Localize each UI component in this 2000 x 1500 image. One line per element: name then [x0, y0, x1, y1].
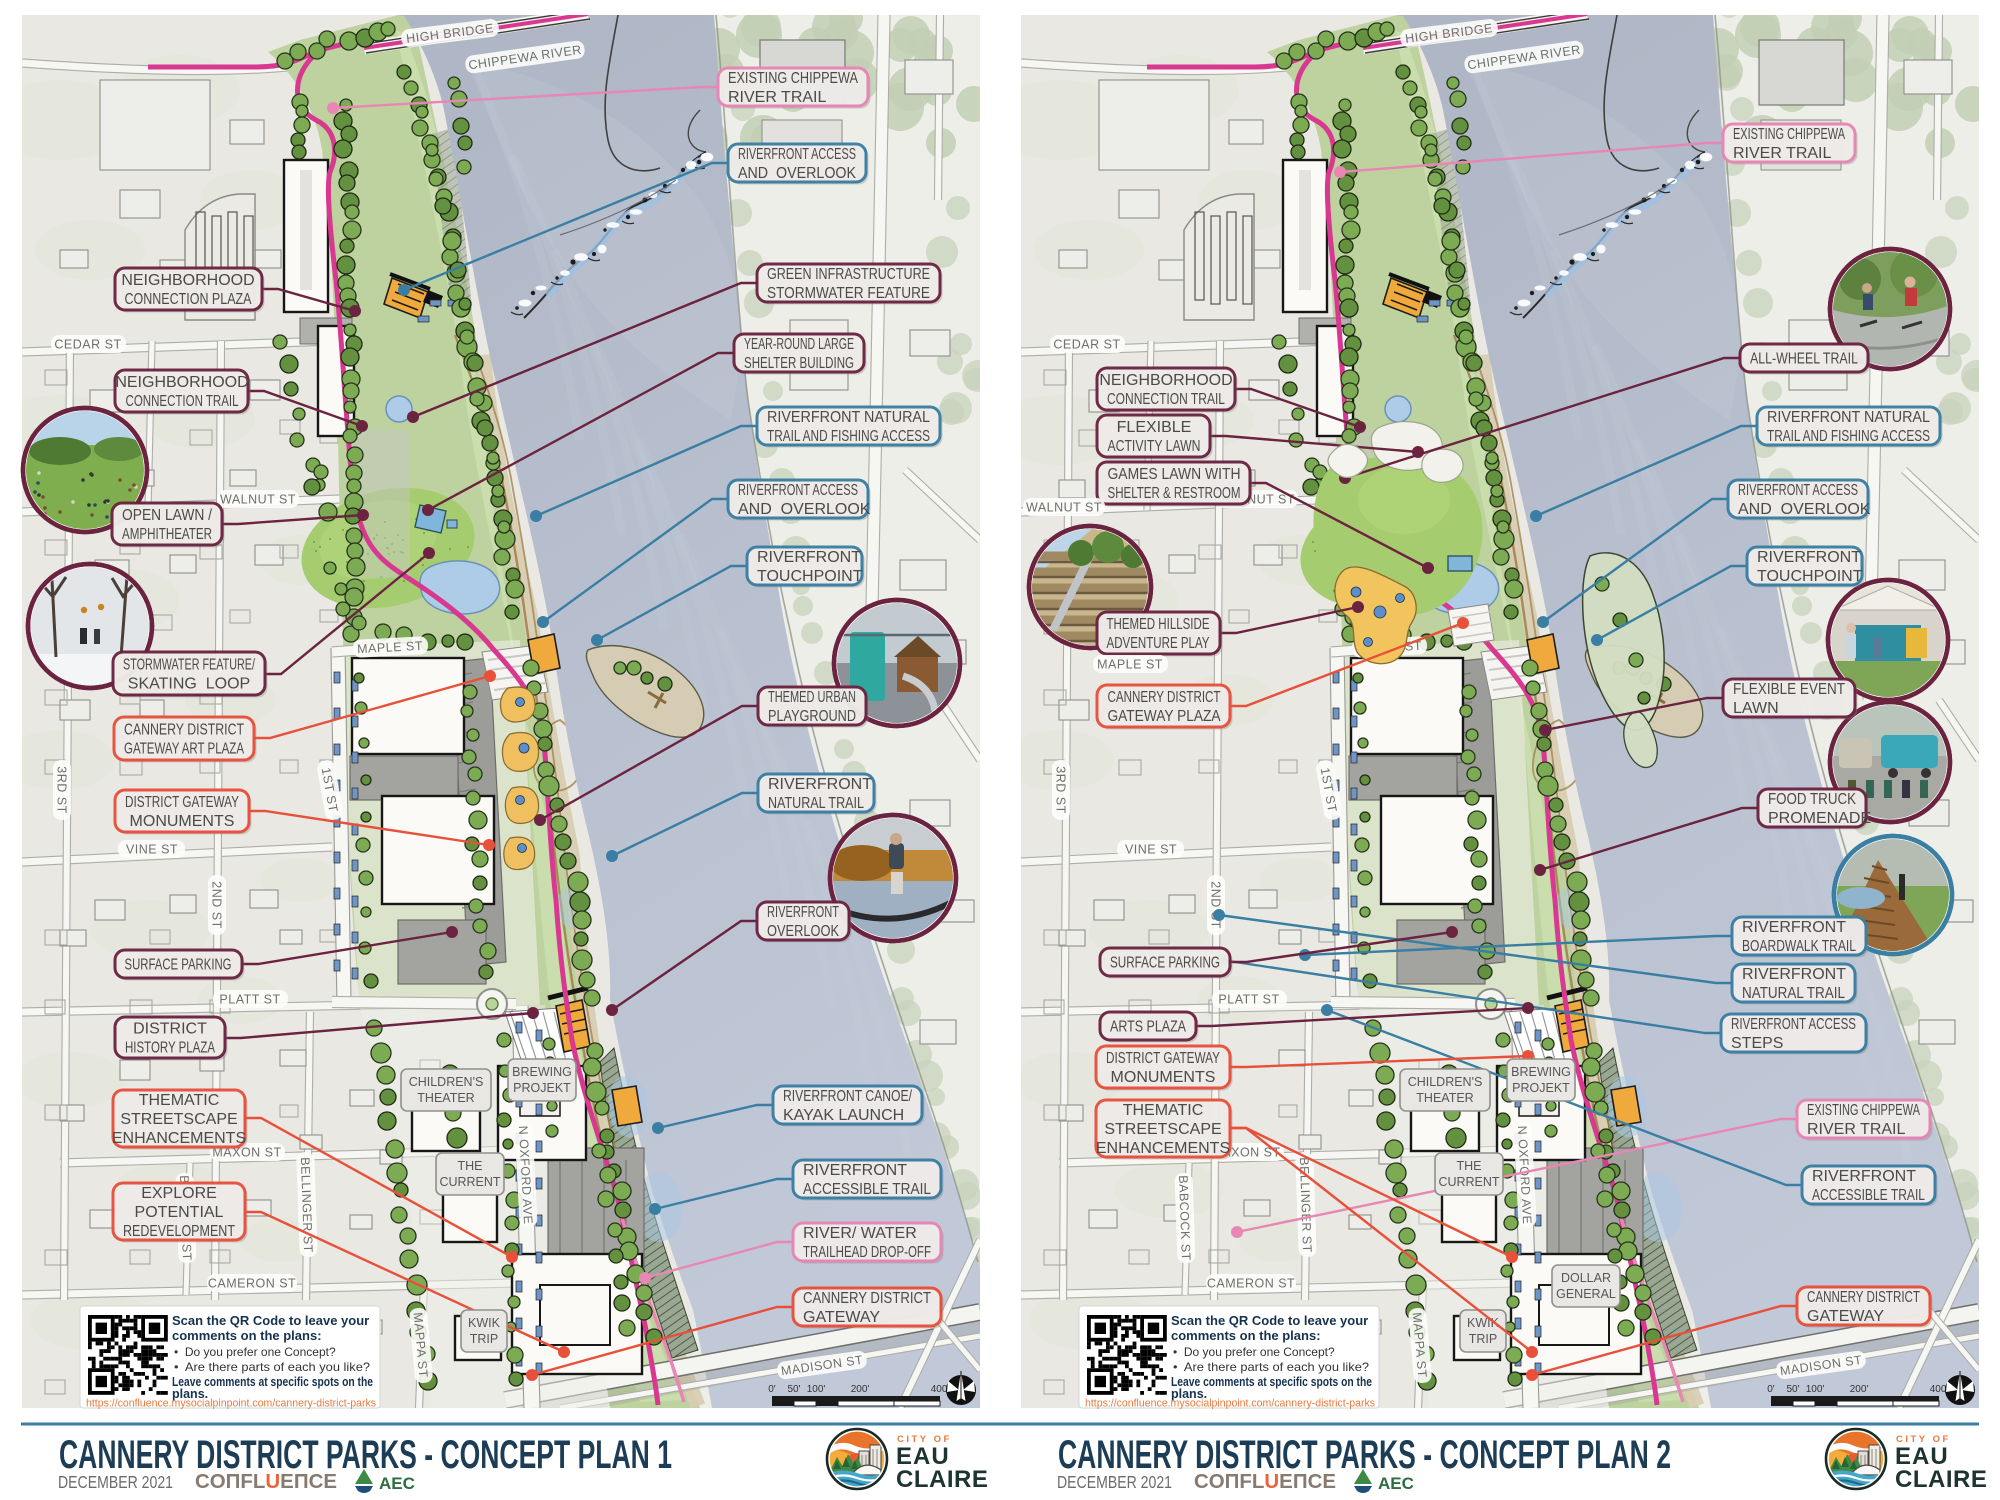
- svg-text:SURFACE PARKING: SURFACE PARKING: [1110, 955, 1220, 972]
- svg-text:NEIGHBORHOOD: NEIGHBORHOOD: [1099, 372, 1232, 389]
- svg-text:STORMWATER FEATURE/: STORMWATER FEATURE/: [123, 657, 255, 674]
- svg-text:comments on the plans:: comments on the plans:: [172, 1328, 322, 1343]
- svg-text:AND OVERLOOK: AND OVERLOOK: [738, 165, 856, 182]
- svg-text:ALL-WHEEL TRAIL: ALL-WHEEL TRAIL: [1750, 351, 1858, 368]
- svg-text:THE: THE: [1457, 1159, 1482, 1173]
- svg-text:SHELTER & RESTROOM: SHELTER & RESTROOM: [1108, 485, 1241, 502]
- svg-text:EXISTING CHIPPEWA: EXISTING CHIPPEWA: [1733, 126, 1845, 143]
- svg-text:CANNERY DISTRICT: CANNERY DISTRICT: [1108, 689, 1221, 706]
- svg-text:comments on the plans:: comments on the plans:: [1171, 1328, 1321, 1343]
- svg-text:THEMATIC: THEMATIC: [139, 1092, 220, 1109]
- svg-text:SHELTER BUILDING: SHELTER BUILDING: [744, 355, 854, 372]
- svg-text:TRAIL AND FISHING ACCESS: TRAIL AND FISHING ACCESS: [767, 428, 930, 445]
- svg-text:HISTORY PLAZA: HISTORY PLAZA: [125, 1040, 215, 1057]
- svg-text:RIVERFRONT: RIVERFRONT: [757, 549, 861, 566]
- svg-text:RIVERFRONT: RIVERFRONT: [1742, 966, 1846, 983]
- svg-text:GATEWAY: GATEWAY: [1807, 1308, 1884, 1325]
- svg-text:COΠFLUEΠCE: COΠFLUEΠCE: [195, 1471, 337, 1493]
- svg-text:• Do you prefer one Concept?: • Do you prefer one Concept?: [1173, 1345, 1335, 1359]
- svg-text:WALNUT ST: WALNUT ST: [1026, 501, 1102, 515]
- svg-text:https://confluence.mysocialpin: https://confluence.mysocialpinpoint.com/…: [1085, 1398, 1375, 1410]
- svg-text:NATURAL TRAIL: NATURAL TRAIL: [1742, 985, 1845, 1002]
- svg-text:RIVERFRONT: RIVERFRONT: [768, 776, 872, 793]
- svg-text:PROJEKT: PROJEKT: [513, 1081, 571, 1095]
- svg-text:ACCESSIBLE TRAIL: ACCESSIBLE TRAIL: [803, 1181, 931, 1198]
- svg-text:REDEVELOPMENT: REDEVELOPMENT: [123, 1223, 235, 1240]
- svg-text:STREETSCAPE: STREETSCAPE: [120, 1111, 237, 1128]
- svg-text:GAMES LAWN WITH: GAMES LAWN WITH: [1108, 466, 1241, 483]
- svg-text:THEMED HILLSIDE: THEMED HILLSIDE: [1107, 616, 1210, 633]
- svg-text:CANNERY DISTRICT PARKS - CONCE: CANNERY DISTRICT PARKS - CONCEPT PLAN 1: [59, 1433, 672, 1477]
- svg-text:EXPLORE: EXPLORE: [141, 1185, 217, 1202]
- svg-text:AEC: AEC: [1378, 1474, 1414, 1493]
- svg-text:CONNECTION PLAZA: CONNECTION PLAZA: [125, 291, 252, 308]
- svg-text:MONUMENTS: MONUMENTS: [130, 813, 235, 830]
- svg-text:AND OVERLOOK: AND OVERLOOK: [1738, 501, 1871, 518]
- svg-text:RIVERFRONT ACCESS: RIVERFRONT ACCESS: [738, 482, 858, 499]
- svg-text:TOUCHPOINT: TOUCHPOINT: [1757, 568, 1863, 585]
- svg-text:RIVER TRAIL: RIVER TRAIL: [728, 89, 827, 106]
- svg-text:CANNERY DISTRICT: CANNERY DISTRICT: [803, 1290, 931, 1307]
- svg-text:THEMED URBAN: THEMED URBAN: [768, 689, 856, 706]
- svg-text:NATURAL TRAIL: NATURAL TRAIL: [768, 795, 864, 812]
- svg-text:STREETSCAPE: STREETSCAPE: [1104, 1121, 1221, 1138]
- svg-text:ACTIVITY LAWN: ACTIVITY LAWN: [1108, 438, 1201, 455]
- svg-text:CANNERY DISTRICT: CANNERY DISTRICT: [1807, 1289, 1920, 1306]
- svg-text:TRAILHEAD DROP-OFF: TRAILHEAD DROP-OFF: [803, 1244, 931, 1261]
- svg-text:CURRENT: CURRENT: [1438, 1175, 1499, 1189]
- svg-text:ENHANCEMENTS: ENHANCEMENTS: [112, 1130, 246, 1147]
- svg-text:DISTRICT: DISTRICT: [133, 1021, 207, 1038]
- svg-text:GATEWAY: GATEWAY: [803, 1309, 880, 1326]
- svg-text:SURFACE PARKING: SURFACE PARKING: [125, 957, 232, 974]
- svg-text:KWIK: KWIK: [468, 1316, 501, 1330]
- svg-text:CURRENT: CURRENT: [439, 1175, 500, 1189]
- svg-text:KAYAK LAUNCH: KAYAK LAUNCH: [783, 1107, 904, 1124]
- svg-text:AMPHITHEATER: AMPHITHEATER: [122, 526, 212, 543]
- svg-text:FLEXIBLE: FLEXIBLE: [1117, 419, 1192, 436]
- svg-text:RIVERFRONT CANOE/: RIVERFRONT CANOE/: [783, 1088, 912, 1105]
- svg-text:• Are there parts of each you: • Are there parts of each you like?: [1173, 1360, 1369, 1374]
- svg-text:https://confluence.mysocialpin: https://confluence.mysocialpinpoint.com/…: [86, 1398, 376, 1410]
- svg-text:CONNECTION TRAIL: CONNECTION TRAIL: [126, 393, 239, 410]
- svg-text:PROMENADE: PROMENADE: [1768, 810, 1871, 827]
- svg-text:NEIGHBORHOOD: NEIGHBORHOOD: [121, 272, 254, 289]
- svg-text:TRAIL AND FISHING ACCESS: TRAIL AND FISHING ACCESS: [1767, 428, 1930, 445]
- svg-text:SKATING LOOP: SKATING LOOP: [128, 676, 250, 693]
- svg-text:YEAR-ROUND LARGE: YEAR-ROUND LARGE: [744, 336, 854, 353]
- svg-text:RIVERFRONT ACCESS: RIVERFRONT ACCESS: [1738, 482, 1858, 499]
- svg-text:TRIP: TRIP: [1469, 1332, 1497, 1346]
- svg-text:BOARDWALK TRAIL: BOARDWALK TRAIL: [1742, 938, 1856, 955]
- svg-text:THEATER: THEATER: [417, 1091, 474, 1105]
- svg-text:RIVERFRONT NATURAL: RIVERFRONT NATURAL: [1767, 409, 1930, 426]
- svg-text:STEPS: STEPS: [1731, 1035, 1783, 1052]
- svg-text:DISTRICT GATEWAY: DISTRICT GATEWAY: [1106, 1050, 1220, 1067]
- svg-text:STORMWATER FEATURE: STORMWATER FEATURE: [767, 285, 930, 302]
- svg-text:RIVERFRONT: RIVERFRONT: [1757, 549, 1861, 566]
- svg-text:MAPLE ST: MAPLE ST: [1097, 658, 1163, 672]
- svg-text:AND OVERLOOK: AND OVERLOOK: [738, 501, 871, 518]
- svg-text:COΠFLUEΠCE: COΠFLUEΠCE: [1194, 1471, 1336, 1493]
- svg-text:THEMATIC: THEMATIC: [1123, 1102, 1204, 1119]
- svg-text:GREEN INFRASTRUCTURE: GREEN INFRASTRUCTURE: [767, 266, 930, 283]
- svg-text:CHILDREN'S: CHILDREN'S: [1408, 1075, 1483, 1089]
- svg-text:TRIP: TRIP: [470, 1332, 498, 1346]
- svg-text:CONNECTION TRAIL: CONNECTION TRAIL: [1107, 391, 1225, 408]
- svg-text:• Do you prefer one Concept?: • Do you prefer one Concept?: [174, 1345, 336, 1359]
- svg-text:NEIGHBORHOOD: NEIGHBORHOOD: [115, 374, 248, 391]
- svg-text:RIVER TRAIL: RIVER TRAIL: [1807, 1121, 1906, 1138]
- svg-text:RIVERFRONT: RIVERFRONT: [1812, 1168, 1916, 1185]
- svg-text:PLAYGROUND: PLAYGROUND: [768, 708, 856, 725]
- svg-text:OVERLOOK: OVERLOOK: [767, 923, 839, 940]
- svg-text:LAWN: LAWN: [1733, 700, 1779, 717]
- svg-text:FLEXIBLE EVENT: FLEXIBLE EVENT: [1733, 681, 1845, 698]
- svg-text:CANNERY DISTRICT PARKS - CONCE: CANNERY DISTRICT PARKS - CONCEPT PLAN 2: [1058, 1433, 1671, 1477]
- svg-text:FOOD TRUCK: FOOD TRUCK: [1768, 791, 1856, 808]
- svg-text:RIVER/ WATER: RIVER/ WATER: [803, 1225, 917, 1242]
- svg-text:CLAIRE: CLAIRE: [896, 1466, 988, 1493]
- svg-text:THEATER: THEATER: [1416, 1091, 1473, 1105]
- svg-text:GATEWAY ART PLAZA: GATEWAY ART PLAZA: [124, 741, 244, 758]
- svg-text:GATEWAY PLAZA: GATEWAY PLAZA: [1108, 708, 1221, 725]
- svg-text:OPEN LAWN /: OPEN LAWN /: [122, 507, 212, 524]
- svg-text:RIVERFRONT: RIVERFRONT: [767, 904, 839, 921]
- svg-text:RIVERFRONT ACCESS: RIVERFRONT ACCESS: [738, 146, 856, 163]
- svg-text:ACCESSIBLE TRAIL: ACCESSIBLE TRAIL: [1812, 1187, 1925, 1204]
- svg-text:RIVER TRAIL: RIVER TRAIL: [1733, 145, 1832, 162]
- svg-text:RIVERFRONT: RIVERFRONT: [803, 1162, 907, 1179]
- svg-text:MONUMENTS: MONUMENTS: [1111, 1069, 1216, 1086]
- svg-text:DECEMBER 2021: DECEMBER 2021: [58, 1472, 173, 1492]
- svg-text:DOLLAR: DOLLAR: [1561, 1271, 1611, 1285]
- svg-text:EXISTING CHIPPEWA: EXISTING CHIPPEWA: [1807, 1102, 1920, 1119]
- svg-text:THE: THE: [458, 1159, 483, 1173]
- svg-text:ENHANCEMENTS: ENHANCEMENTS: [1096, 1140, 1230, 1157]
- svg-text:TOUCHPOINT: TOUCHPOINT: [757, 568, 863, 585]
- svg-text:DISTRICT GATEWAY: DISTRICT GATEWAY: [125, 794, 239, 811]
- svg-text:RIVERFRONT NATURAL: RIVERFRONT NATURAL: [767, 409, 930, 426]
- svg-text:RIVERFRONT ACCESS: RIVERFRONT ACCESS: [1731, 1016, 1856, 1033]
- svg-text:AEC: AEC: [379, 1474, 415, 1493]
- svg-text:PROJEKT: PROJEKT: [1512, 1081, 1570, 1095]
- svg-text:BREWING: BREWING: [1511, 1065, 1571, 1079]
- svg-text:• Are there parts of each you: • Are there parts of each you like?: [174, 1360, 370, 1374]
- svg-text:Scan the QR Code to leave your: Scan the QR Code to leave your: [1171, 1313, 1368, 1328]
- svg-text:CHILDREN'S: CHILDREN'S: [409, 1075, 484, 1089]
- svg-text:BREWING: BREWING: [512, 1065, 572, 1079]
- svg-text:POTENTIAL: POTENTIAL: [135, 1204, 224, 1221]
- svg-text:CLAIRE: CLAIRE: [1895, 1466, 1987, 1493]
- svg-text:ADVENTURE PLAY: ADVENTURE PLAY: [1107, 635, 1210, 652]
- svg-text:DECEMBER 2021: DECEMBER 2021: [1057, 1472, 1172, 1492]
- svg-text:GENERAL: GENERAL: [1556, 1287, 1616, 1301]
- svg-text:EXISTING CHIPPEWA: EXISTING CHIPPEWA: [728, 70, 858, 87]
- svg-text:Scan the QR Code to leave your: Scan the QR Code to leave your: [172, 1313, 369, 1328]
- svg-text:RIVERFRONT: RIVERFRONT: [1742, 919, 1846, 936]
- svg-text:CANNERY DISTRICT: CANNERY DISTRICT: [124, 722, 244, 739]
- svg-text:ARTS PLAZA: ARTS PLAZA: [1110, 1019, 1186, 1036]
